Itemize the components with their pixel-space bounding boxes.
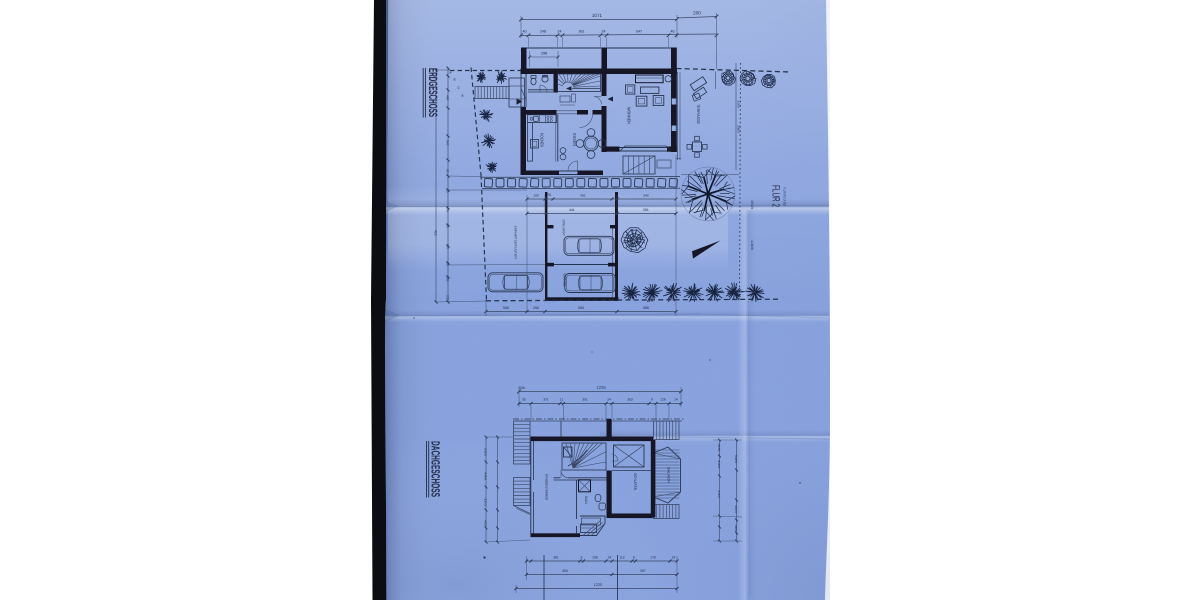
svg-text:450: 450 (562, 569, 568, 573)
svg-text:FLUR 2: FLUR 2 (770, 185, 782, 207)
svg-text:24: 24 (558, 30, 562, 34)
svg-text:500: 500 (519, 386, 525, 390)
svg-text:KINDERZIMMER: KINDERZIMMER (545, 474, 549, 501)
svg-text:178: 178 (650, 556, 656, 560)
svg-text:238: 238 (592, 556, 598, 560)
svg-text:448: 448 (446, 95, 450, 101)
svg-text:587: 587 (640, 569, 646, 573)
svg-text:EINFAHRT GEPFLASTERT: EINFAHRT GEPFLASTERT (514, 226, 518, 259)
svg-text:135: 135 (717, 490, 721, 499)
svg-text:DOPPEL-CARPORT: DOPPEL-CARPORT (562, 220, 566, 236)
svg-text:200: 200 (533, 306, 539, 310)
svg-text:248: 248 (540, 30, 546, 34)
svg-text:105: 105 (737, 100, 741, 109)
svg-text:11: 11 (560, 398, 564, 402)
svg-text:8: 8 (651, 398, 653, 402)
svg-text:45: 45 (484, 520, 488, 527)
svg-text:90: 90 (446, 189, 450, 193)
svg-text:98: 98 (446, 224, 450, 228)
svg-text:40: 40 (671, 30, 675, 34)
svg-text:351: 351 (580, 194, 586, 198)
svg-text:40: 40 (446, 169, 450, 173)
svg-text:345: 345 (446, 140, 450, 146)
svg-text:1071: 1071 (592, 13, 603, 18)
svg-text:363: 363 (627, 398, 633, 402)
svg-text:358: 358 (750, 200, 754, 209)
svg-text:381: 381 (553, 556, 559, 560)
svg-text:371: 371 (543, 398, 549, 402)
svg-text:110: 110 (734, 505, 738, 514)
svg-text:498: 498 (484, 472, 488, 481)
svg-text:KOCHEN: KOCHEN (540, 133, 545, 147)
svg-text:24: 24 (457, 86, 461, 90)
svg-text:128: 128 (660, 398, 666, 402)
svg-text:100: 100 (533, 194, 539, 198)
svg-text:24: 24 (672, 556, 676, 560)
svg-text:TERRASSE: TERRASSE (696, 104, 700, 124)
svg-text:297: 297 (446, 244, 450, 250)
svg-text:441: 441 (569, 208, 575, 212)
svg-text:298: 298 (541, 52, 547, 56)
svg-text:46: 46 (461, 94, 465, 98)
svg-text:ESSEN: ESSEN (572, 133, 577, 146)
svg-text:1225: 1225 (596, 385, 606, 390)
svg-text:265: 265 (484, 448, 488, 457)
svg-text:24: 24 (602, 30, 606, 34)
svg-text:200: 200 (693, 11, 701, 16)
svg-text:24: 24 (674, 398, 678, 402)
svg-text:40: 40 (449, 71, 453, 75)
svg-text:WOHNEN: WOHNEN (627, 107, 632, 124)
svg-text:361: 361 (579, 30, 585, 34)
svg-text:BAD: BAD (584, 496, 588, 505)
svg-text:35: 35 (522, 398, 526, 402)
svg-text:24: 24 (608, 556, 612, 560)
svg-text:360: 360 (737, 125, 741, 134)
svg-text:547: 547 (636, 30, 642, 34)
svg-text:FLURSTÜCK 852: FLURSTÜCK 852 (783, 187, 787, 206)
svg-text:24: 24 (607, 398, 611, 402)
svg-text:422: 422 (434, 230, 438, 236)
svg-text:110: 110 (484, 498, 488, 507)
svg-text:8: 8 (581, 556, 583, 560)
svg-text:DACHGESCHOSS: DACHGESCHOSS (429, 441, 443, 497)
svg-text:141: 141 (446, 207, 450, 213)
svg-text:SCHLAFEN: SCHLAFEN (633, 473, 638, 490)
svg-text:55: 55 (548, 193, 552, 197)
svg-text:580: 580 (643, 306, 649, 310)
svg-text:50: 50 (453, 78, 457, 82)
svg-text:436: 436 (717, 460, 721, 469)
svg-text:40: 40 (734, 525, 738, 532)
svg-text:8: 8 (633, 556, 635, 560)
svg-text:600: 600 (578, 306, 584, 310)
svg-text:1306: 1306 (750, 240, 754, 250)
svg-text:1225: 1225 (594, 583, 602, 587)
svg-text:383: 383 (446, 276, 450, 282)
svg-text:40: 40 (523, 30, 527, 34)
svg-text:581: 581 (643, 208, 649, 212)
svg-text:391: 391 (582, 398, 588, 402)
svg-text:ERDGESCHOSS: ERDGESCHOSS (426, 68, 440, 117)
svg-text:340: 340 (643, 194, 649, 198)
svg-text:200: 200 (446, 295, 450, 301)
svg-text:535: 535 (734, 455, 738, 464)
svg-text:95: 95 (717, 444, 721, 452)
svg-text:BALKON: BALKON (667, 467, 671, 484)
svg-text:500: 500 (503, 306, 509, 310)
svg-text:113: 113 (619, 556, 624, 560)
